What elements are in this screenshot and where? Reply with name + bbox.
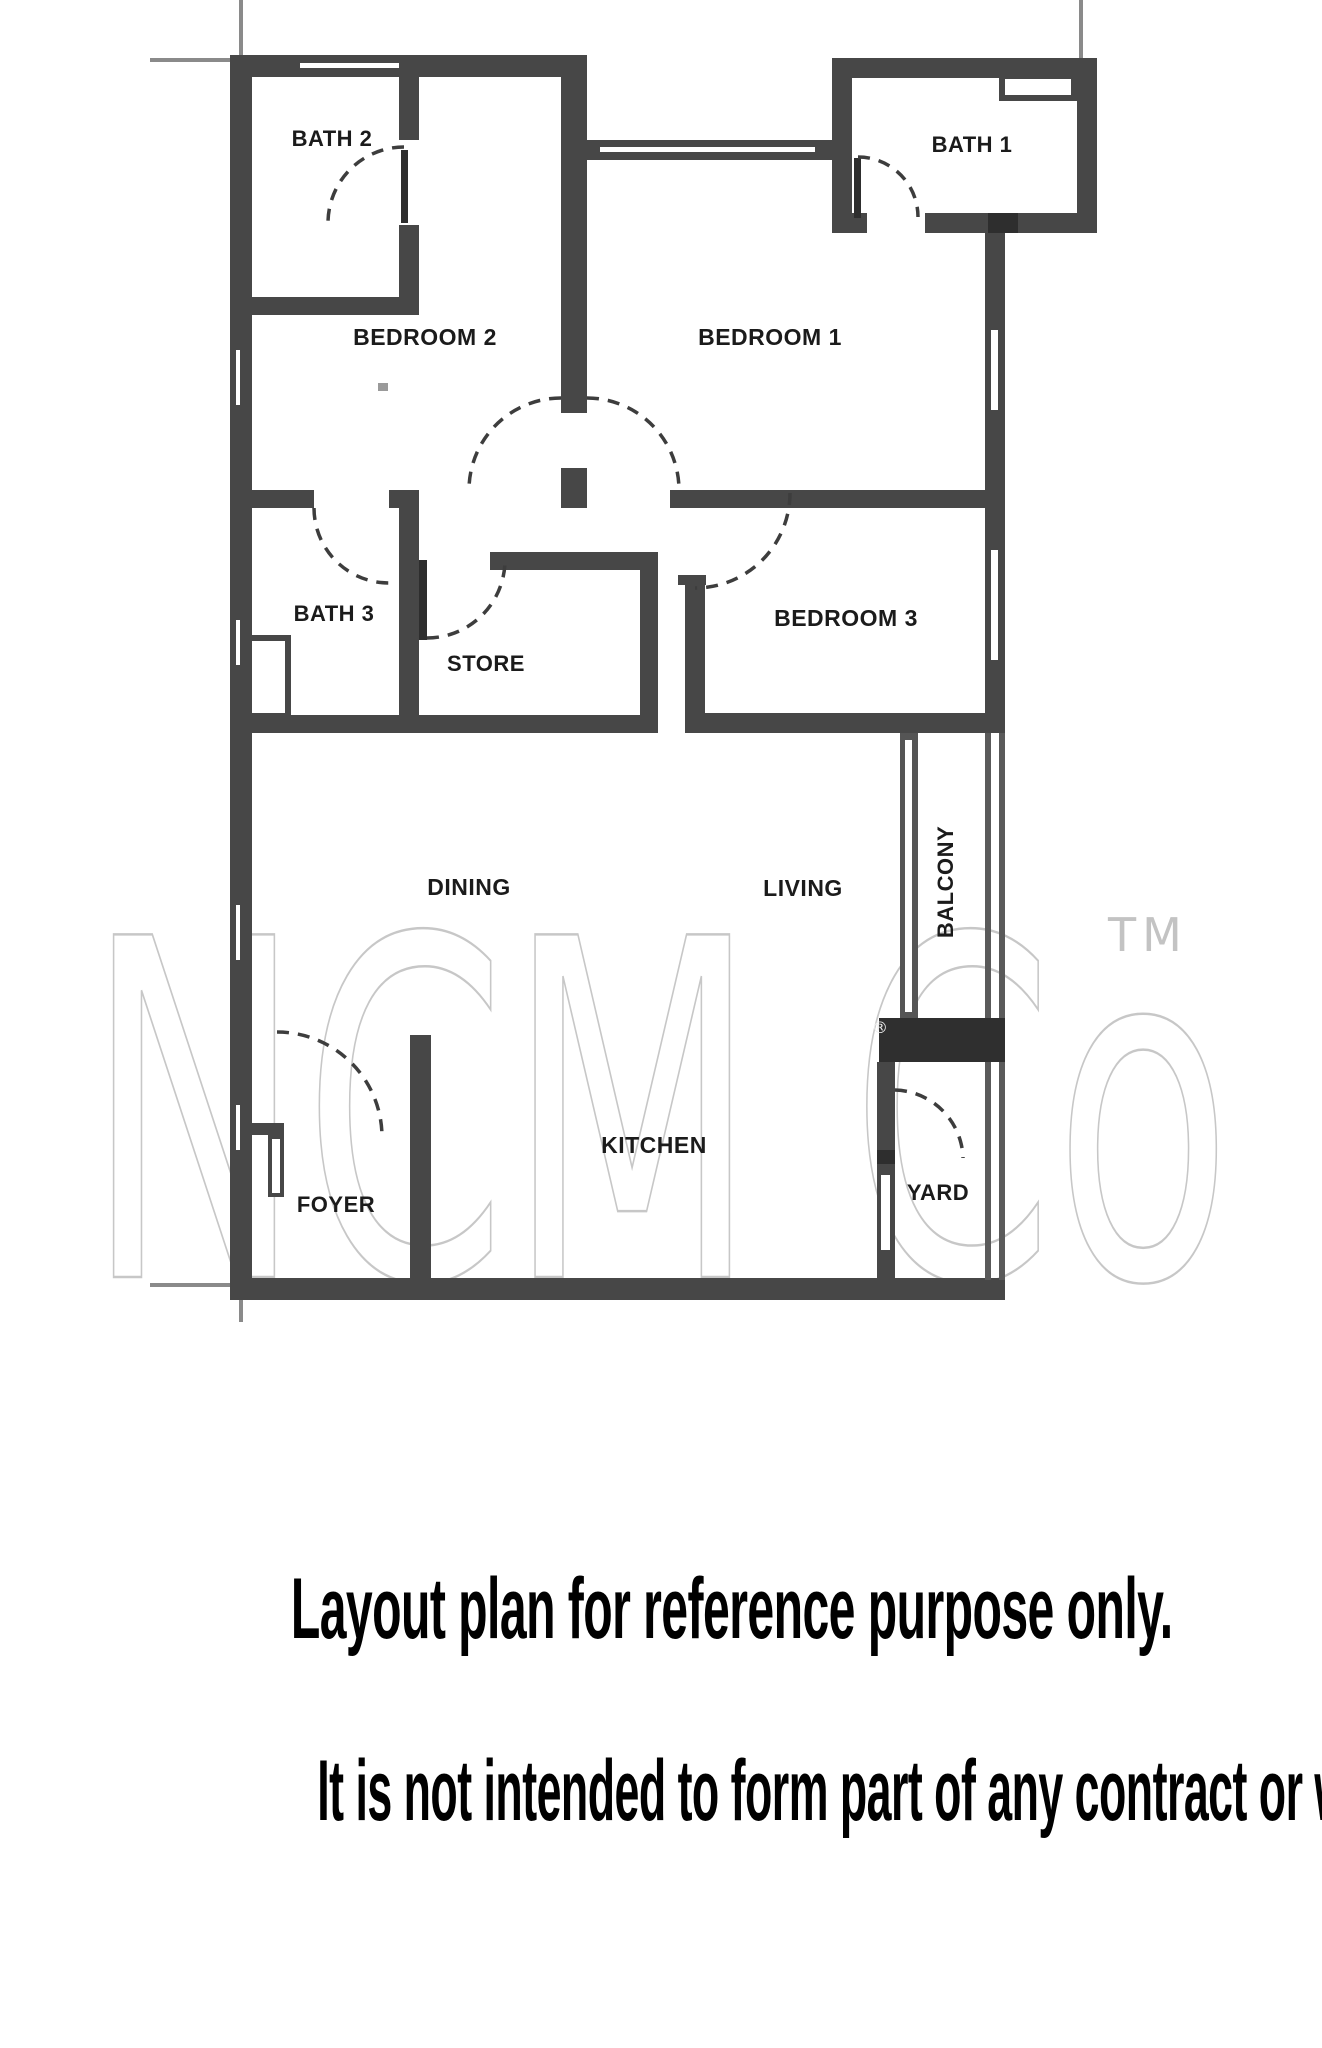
construction-line-top-left: [239, 0, 243, 55]
bedroom3-door-jamb: [678, 575, 706, 585]
construction-tick-top-left: [150, 58, 230, 62]
wall-bath2-right-upper: [399, 55, 419, 140]
wall-bedroom3-top: [670, 490, 1005, 508]
bedroom2-mark: [378, 383, 388, 391]
room-label-bath-2: BATH 2: [292, 126, 373, 151]
wall-divider-bed2-bed1: [561, 55, 587, 413]
room-label-balcony: BALCONY: [933, 826, 958, 938]
bath3-door-arc: [314, 508, 389, 583]
wall-bath3-top-post: [389, 490, 419, 508]
wall-bath1-right: [1077, 58, 1097, 233]
wall-foyer-right: [410, 1035, 431, 1300]
store-door-arc: [427, 560, 505, 638]
entry-door-leaf: [270, 1137, 282, 1195]
watermark-registered: ®: [872, 1018, 888, 1037]
balcony-parapet-inner: [999, 733, 1005, 1280]
room-label-yard: YARD: [907, 1180, 969, 1205]
room-label-dining: DINING: [427, 874, 511, 900]
room-label-store: STORE: [447, 651, 525, 676]
room-label-kitchen: KITCHEN: [601, 1132, 707, 1158]
floor-plan-page: NCM Co TM ®: [0, 0, 1322, 2048]
room-label-foyer: FOYER: [297, 1192, 375, 1217]
wall-bottom-outer: [230, 1278, 1005, 1300]
construction-line-bottom-left: [239, 1300, 243, 1322]
room-label-bath-1: BATH 1: [932, 132, 1013, 157]
wall-store-top: [490, 552, 658, 570]
bedroom1-door-arc: [587, 398, 679, 490]
balcony-parapet-outer: [985, 733, 991, 1280]
wall-yard-jamb: [877, 1150, 895, 1164]
bath2-door-leaf: [401, 150, 408, 223]
wall-bath1-dark-mark: [988, 213, 1018, 233]
room-label-bedroom-1: BEDROOM 1: [698, 324, 842, 350]
construction-line-top-right: [1079, 0, 1083, 58]
disclaimer-line-1: Layout plan for reference purpose only.: [291, 1560, 1031, 1659]
room-label-bedroom-2: BEDROOM 2: [353, 324, 497, 350]
walls: [150, 0, 1097, 1322]
room-label-bedroom-3: BEDROOM 3: [774, 605, 918, 631]
floor-plan-drawing: BATH 2 BATH 1 BEDROOM 2 BEDROOM 1 BATH 3…: [0, 0, 1322, 1460]
wall-bedroom3-left: [685, 585, 705, 733]
yard-door-arc: [895, 1090, 963, 1158]
wall-bath1-bottom-left: [832, 213, 867, 233]
store-door-leaf: [419, 560, 427, 640]
bath1-door-arc: [858, 157, 918, 217]
construction-tick-bottom-left: [150, 1283, 230, 1287]
entry-door-arc: [277, 1032, 382, 1137]
bedroom2-door-arc: [469, 398, 561, 490]
wall-bath3-top-left: [230, 490, 314, 508]
room-label-living: LIVING: [763, 875, 843, 901]
wall-bath2-bottom: [230, 297, 419, 315]
bath1-door-leaf: [854, 158, 861, 218]
kitchen-counter: [879, 1018, 1005, 1062]
wall-bedroom3-bottom: [685, 713, 1005, 733]
wall-bath3-right: [399, 508, 419, 733]
wall-store-right: [640, 552, 658, 733]
wall-bath3-store-bottom: [230, 715, 658, 733]
room-label-bath-3: BATH 3: [294, 601, 375, 626]
wall-bath1-left: [832, 58, 852, 233]
bath1-sink: [1002, 76, 1074, 98]
disclaimer-line-2: It is not intended to form part of any c…: [317, 1742, 1004, 1841]
wall-divider-stub: [561, 468, 587, 508]
bath2-door-arc: [328, 147, 404, 223]
entry-door-jamb: [252, 1123, 284, 1135]
